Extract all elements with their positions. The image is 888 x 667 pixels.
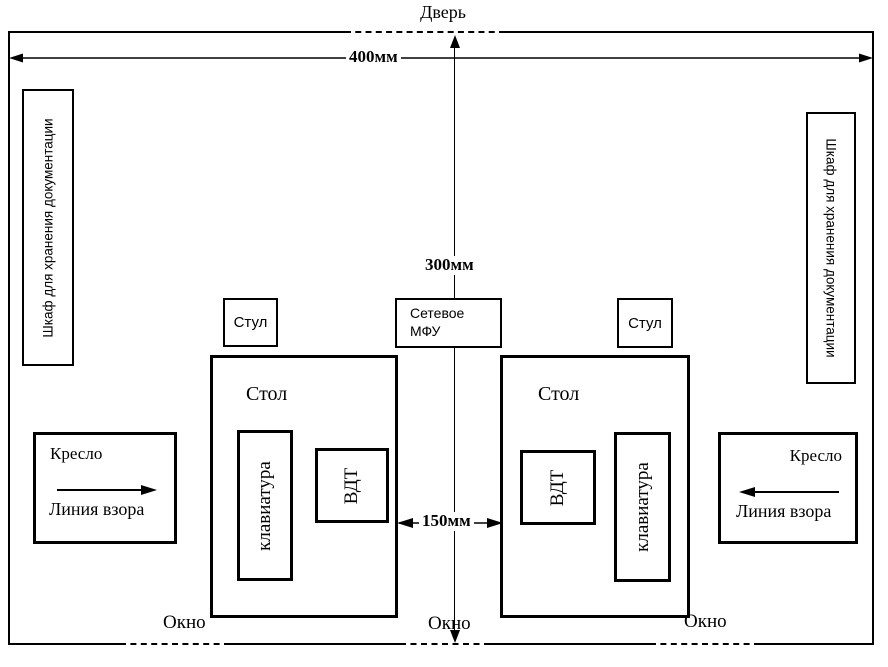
cabinet-right-label: Шкаф для хранения документации (824, 138, 839, 357)
chair-right: Стул (617, 298, 673, 348)
desk-left: Стол клавиатура ВДТ (210, 355, 398, 618)
armchair-right-sight-label: Линия взора (736, 501, 831, 522)
bottom-wall-segment-2 (230, 643, 400, 645)
window-center-dashed (400, 643, 490, 645)
window-right-dashed (650, 643, 760, 645)
armchair-right-label: Кресло (790, 446, 842, 466)
dimension-400-label: 400мм (346, 48, 401, 67)
dimension-400-arrow-icon (8, 50, 874, 66)
desk-right-label: Стол (538, 383, 579, 406)
center-axis-arrow-up-icon (450, 35, 460, 48)
keyboard-right-label: клавиатура (632, 462, 654, 552)
door-label: Дверь (408, 2, 478, 23)
network-mfu: Сетевое МФУ (395, 298, 502, 348)
top-wall-left-segment (8, 31, 345, 33)
vdt-right: ВДТ (520, 450, 596, 525)
bottom-wall-segment-1 (8, 643, 120, 645)
door-opening-dashed (345, 31, 505, 33)
bottom-wall-segment-4 (760, 643, 874, 645)
cabinet-left-label: Шкаф для хранения документации (41, 118, 56, 337)
top-wall-right-segment (505, 31, 874, 33)
keyboard-right: клавиатура (614, 432, 671, 582)
armchair-right: Кресло Линия взора (718, 432, 858, 544)
window-left-label: Окно (163, 612, 206, 634)
cabinet-left: Шкаф для хранения документации (22, 89, 74, 366)
room-layout-diagram: Дверь 400мм 300мм Шкаф для хранения доку… (0, 0, 888, 667)
keyboard-left: клавиатура (237, 430, 293, 581)
dimension-300-label: 300мм (422, 256, 477, 275)
desk-right: Стол ВДТ клавиатура (500, 355, 690, 618)
vdt-left-label: ВДТ (341, 467, 363, 504)
sight-arrow-right-icon (57, 483, 159, 497)
desk-left-label: Стол (246, 383, 287, 406)
vdt-right-label: ВДТ (547, 469, 569, 506)
sight-arrow-left-icon (737, 485, 839, 499)
dimension-150-label: 150мм (419, 512, 474, 531)
vdt-left: ВДТ (315, 448, 389, 523)
armchair-left: Кресло Линия взора (33, 432, 177, 544)
chair-left: Стул (223, 298, 278, 347)
right-wall (872, 31, 874, 645)
window-left-dashed (120, 643, 230, 645)
armchair-left-label: Кресло (50, 444, 102, 464)
armchair-left-sight-label: Линия взора (49, 499, 144, 520)
window-right-label: Окно (684, 611, 727, 633)
chair-left-label: Стул (234, 314, 268, 331)
bottom-wall-segment-3 (490, 643, 650, 645)
cabinet-right: Шкаф для хранения документации (806, 112, 856, 384)
left-wall (8, 31, 10, 645)
window-center-label: Окно (428, 613, 471, 635)
network-mfu-label: Сетевое МФУ (397, 300, 478, 340)
chair-right-label: Стул (628, 315, 662, 332)
keyboard-left-label: клавиатура (254, 461, 276, 551)
